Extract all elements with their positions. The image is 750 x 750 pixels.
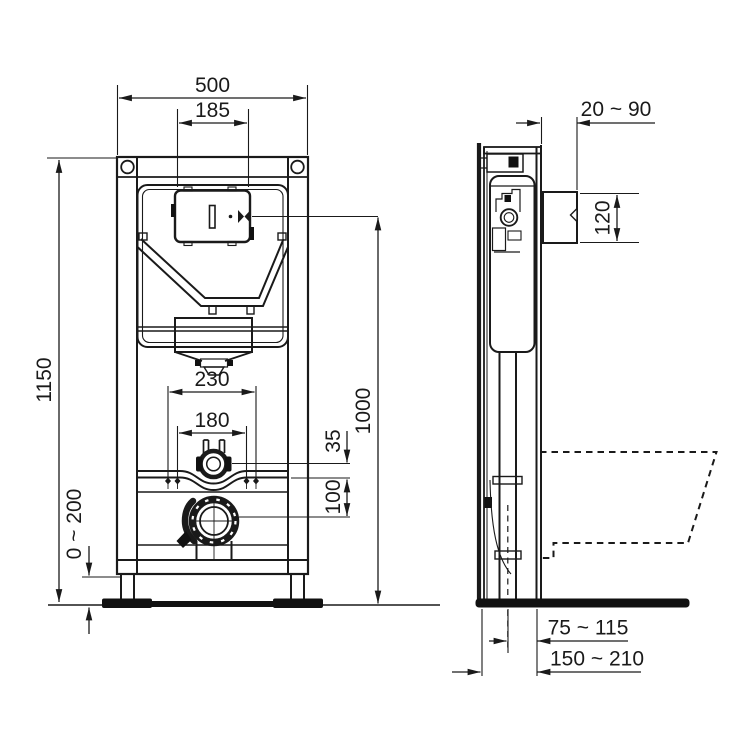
dim-label-bolts-inner: 180 bbox=[194, 409, 229, 432]
floor-line-side bbox=[476, 599, 690, 608]
dim-label-flush-bend: 120 bbox=[592, 200, 615, 235]
dim-label-overall-width: 500 bbox=[195, 74, 230, 97]
dim-label-outlet-to-front: 75 ~ 115 bbox=[548, 617, 629, 640]
dim-label-plate-centre-height: 1000 bbox=[352, 388, 375, 435]
toilet-frame-drawing: 500 185 230 180 1150 0 ~ 200 35 100 1000 bbox=[0, 0, 750, 750]
base-bar bbox=[150, 601, 275, 607]
foot-plate-left bbox=[102, 599, 152, 609]
bracket-bolt bbox=[509, 157, 519, 168]
dim-label-frame-height: 1150 bbox=[33, 357, 56, 402]
foot-plate-right bbox=[273, 599, 323, 609]
dim-label-35: 35 bbox=[322, 429, 345, 452]
plate-dot bbox=[229, 215, 233, 219]
dim-label-foot-adjustment: 0 ~ 200 bbox=[63, 489, 86, 560]
dim-label-wall-distance: 20 ~ 90 bbox=[581, 98, 652, 121]
technical-drawing-canvas: 500 185 230 180 1150 0 ~ 200 35 100 1000 bbox=[0, 0, 750, 750]
dim-label-bolts-outer: 230 bbox=[194, 368, 229, 391]
dim-label-frame-depth: 150 ~ 210 bbox=[550, 648, 644, 671]
dim-label-100: 100 bbox=[322, 479, 345, 514]
dim-label-plate-width: 185 bbox=[195, 99, 230, 122]
